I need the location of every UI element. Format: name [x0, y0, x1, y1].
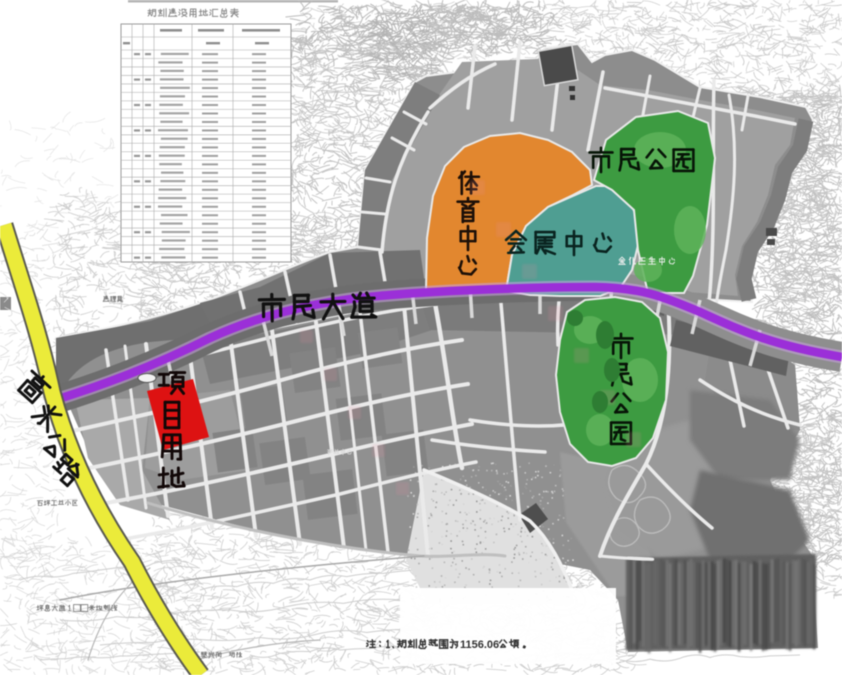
svg-text:1156.06: 1156.06: [460, 639, 499, 651]
